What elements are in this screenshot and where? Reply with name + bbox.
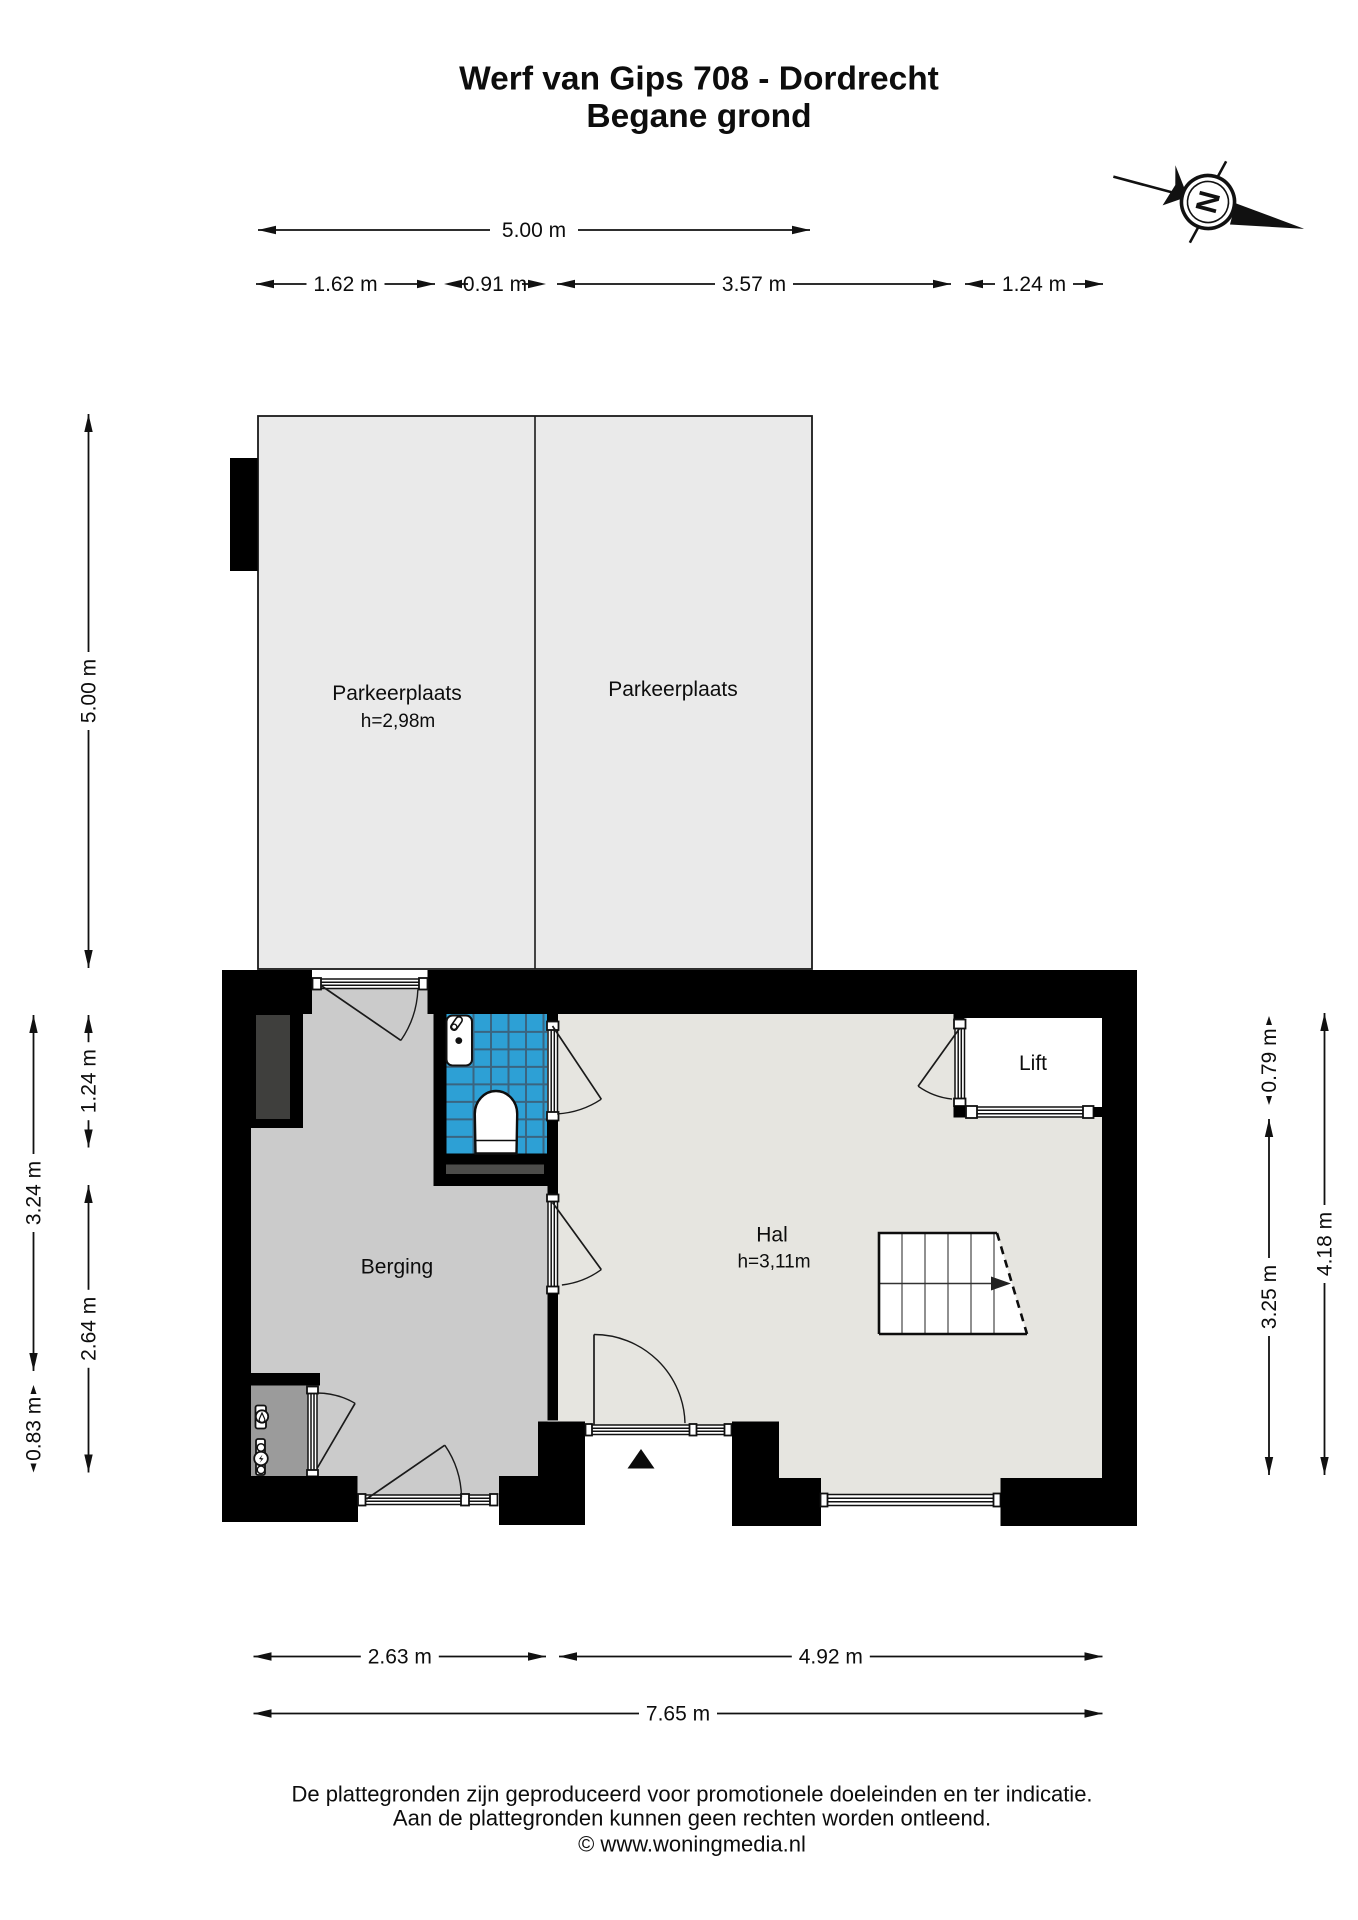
svg-text:4.92 m: 4.92 m — [799, 1646, 863, 1669]
svg-text:4.18 m: 4.18 m — [1314, 1212, 1337, 1276]
svg-text:7.65 m: 7.65 m — [646, 1703, 710, 1726]
svg-text:Aan de plattegronden kunnen ge: Aan de plattegronden kunnen geen rechten… — [393, 1806, 991, 1831]
svg-text:2.63 m: 2.63 m — [368, 1646, 432, 1669]
svg-text:0.91 m: 0.91 m — [463, 273, 527, 296]
svg-text:3.57 m: 3.57 m — [722, 273, 786, 296]
svg-text:5.00 m: 5.00 m — [502, 219, 566, 242]
svg-text:2.64 m: 2.64 m — [78, 1297, 101, 1361]
svg-text:Parkeerplaats: Parkeerplaats — [332, 682, 462, 705]
svg-text:Berging: Berging — [361, 1256, 433, 1279]
svg-text:0.83 m: 0.83 m — [23, 1397, 46, 1461]
svg-text:3.25 m: 3.25 m — [1258, 1265, 1281, 1329]
svg-text:© www.woningmedia.nl: © www.woningmedia.nl — [578, 1832, 806, 1857]
svg-text:h=3,11m: h=3,11m — [737, 1252, 810, 1273]
svg-text:De plattegronden zijn geproduc: De plattegronden zijn geproduceerd voor … — [291, 1782, 1092, 1807]
svg-text:Parkeerplaats: Parkeerplaats — [608, 678, 738, 701]
svg-text:Hal: Hal — [756, 1224, 788, 1247]
svg-text:0.79 m: 0.79 m — [1258, 1028, 1281, 1092]
svg-text:1.62 m: 1.62 m — [313, 273, 377, 296]
svg-text:5.00 m: 5.00 m — [78, 659, 101, 723]
svg-text:h=2,98m: h=2,98m — [361, 711, 435, 732]
svg-text:Lift: Lift — [1019, 1052, 1047, 1075]
svg-text:1.24 m: 1.24 m — [1002, 273, 1066, 296]
svg-text:3.24 m: 3.24 m — [23, 1161, 46, 1225]
svg-text:Begane grond: Begane grond — [586, 98, 811, 135]
svg-text:1.24 m: 1.24 m — [78, 1049, 101, 1113]
svg-text:Werf van Gips 708 - Dordrecht: Werf van Gips 708 - Dordrecht — [459, 61, 939, 98]
